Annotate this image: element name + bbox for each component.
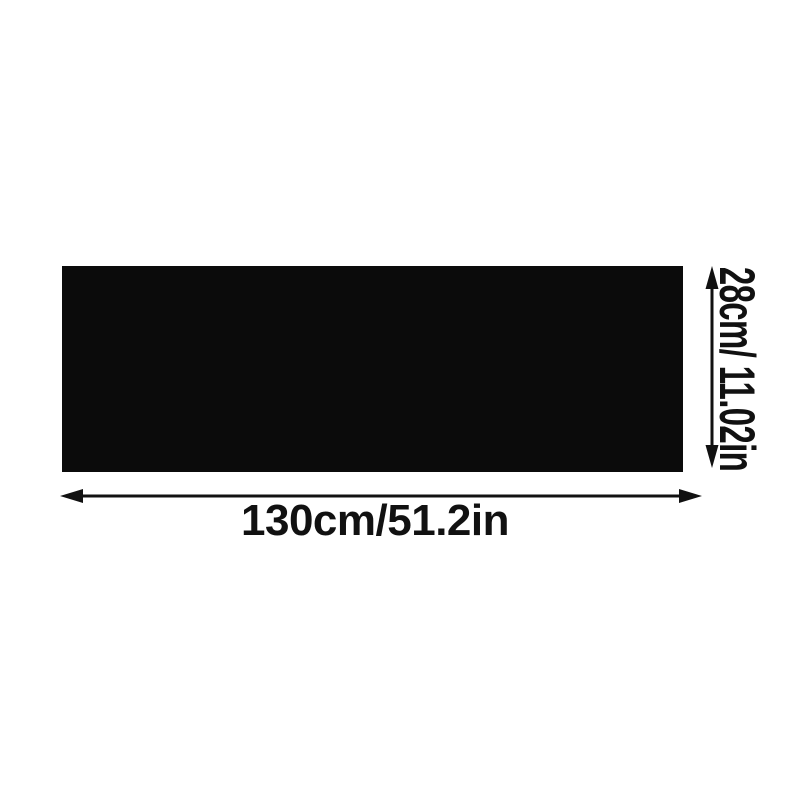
product-rectangle [62,266,683,472]
width-dimension-label: 130cm/51.2in [241,499,509,543]
diagram-canvas [0,0,800,800]
dimension-diagram: 130cm/51.2in 28cm/ 11.02in [0,0,800,800]
width-arrow-right-head-icon [679,489,702,503]
height-dimension-label: 28cm/ 11.02in [712,267,762,471]
width-arrow-left-head-icon [60,489,83,503]
